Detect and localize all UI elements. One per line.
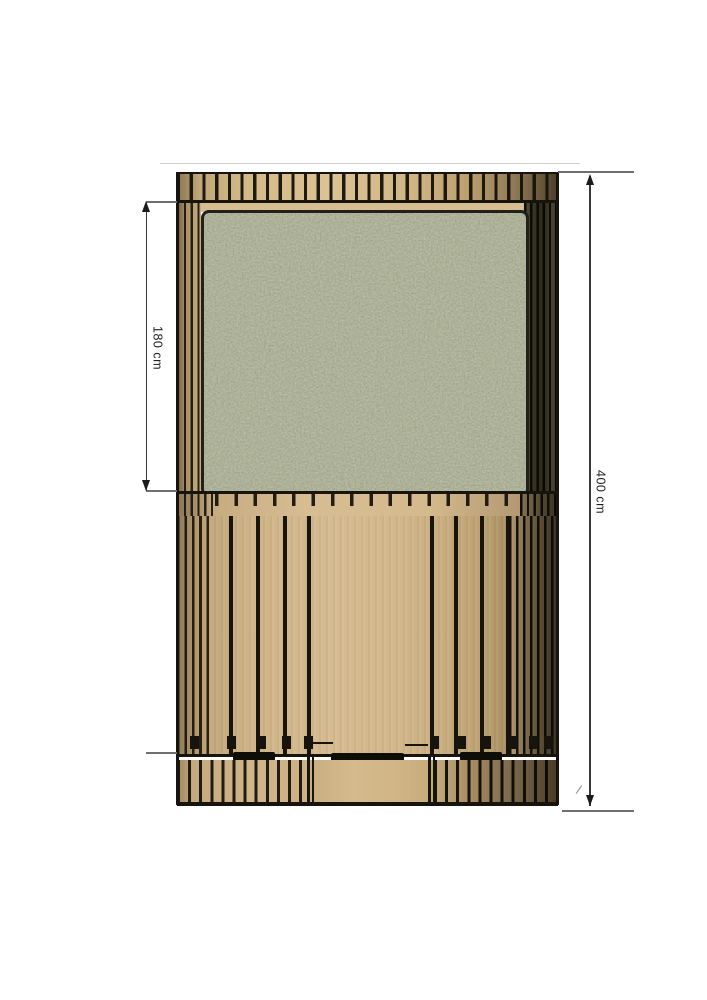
front-plank-section	[177, 516, 558, 757]
extension-line-bottom	[146, 490, 177, 492]
bottom-band-center-plank	[310, 760, 434, 803]
stub	[227, 736, 236, 749]
structure-left-edge	[176, 172, 179, 805]
right-wall-slat-band	[524, 203, 558, 491]
plank-seam	[307, 516, 311, 757]
stub	[529, 736, 538, 749]
plank-right-cluster	[509, 516, 558, 757]
stub	[482, 736, 491, 749]
notch-line-right	[405, 744, 428, 746]
bottom-band-left-slats	[177, 760, 310, 803]
arrow-down-icon	[586, 795, 594, 806]
structure-bottom-edge	[177, 802, 558, 806]
stub	[304, 736, 313, 749]
plank-seam	[430, 516, 434, 757]
moss-texture	[204, 213, 526, 494]
dimension-line	[146, 203, 148, 491]
plank-seam	[283, 516, 287, 757]
stub	[508, 736, 517, 749]
arrow-up-icon	[142, 201, 150, 212]
slat-end-band-left	[177, 494, 215, 516]
drawing-canvas: 180 cm 400 cm	[0, 0, 707, 1000]
bottom-center-right-seam-thin	[433, 757, 435, 803]
extension-line-top	[558, 171, 634, 173]
stub	[257, 736, 266, 749]
dimension-line	[589, 176, 591, 806]
extension-line-mid	[146, 752, 177, 754]
slat-end-band-right	[520, 494, 558, 516]
bottom-band-right-slats	[434, 760, 558, 803]
plank-seam	[480, 516, 484, 757]
extension-line-top	[146, 201, 177, 203]
dimension-tick	[576, 785, 583, 794]
arrow-up-icon	[586, 174, 594, 185]
bottom-wall-band	[177, 760, 558, 803]
notch-line-left	[313, 742, 333, 744]
dimension-label-400: 400 cm	[592, 436, 609, 548]
stub	[430, 736, 439, 749]
plank-left-cluster	[177, 516, 214, 757]
extension-line-bottom	[562, 810, 634, 812]
structure-right-edge	[556, 172, 559, 805]
plank-seam	[506, 516, 510, 757]
plank-seam	[256, 516, 260, 757]
stub	[544, 736, 553, 749]
slat-end-band-middle	[215, 494, 520, 516]
slat-end-band	[177, 494, 558, 516]
dimension-label-180: 180 cm	[149, 292, 166, 404]
construction-line	[160, 163, 580, 164]
plank-seam	[229, 516, 233, 757]
arrow-down-icon	[142, 480, 150, 491]
green-sedum-roof	[201, 210, 529, 497]
bottom-center-right-seam	[428, 757, 431, 803]
plank-seam	[454, 516, 458, 757]
slat-end-ticks	[215, 494, 520, 506]
stub	[457, 736, 466, 749]
stub	[190, 736, 199, 749]
stub	[282, 736, 291, 749]
left-wall-slat-band	[177, 203, 201, 491]
bottom-center-left-seam	[307, 757, 310, 803]
bottom-center-left-seam-thin	[312, 757, 314, 803]
